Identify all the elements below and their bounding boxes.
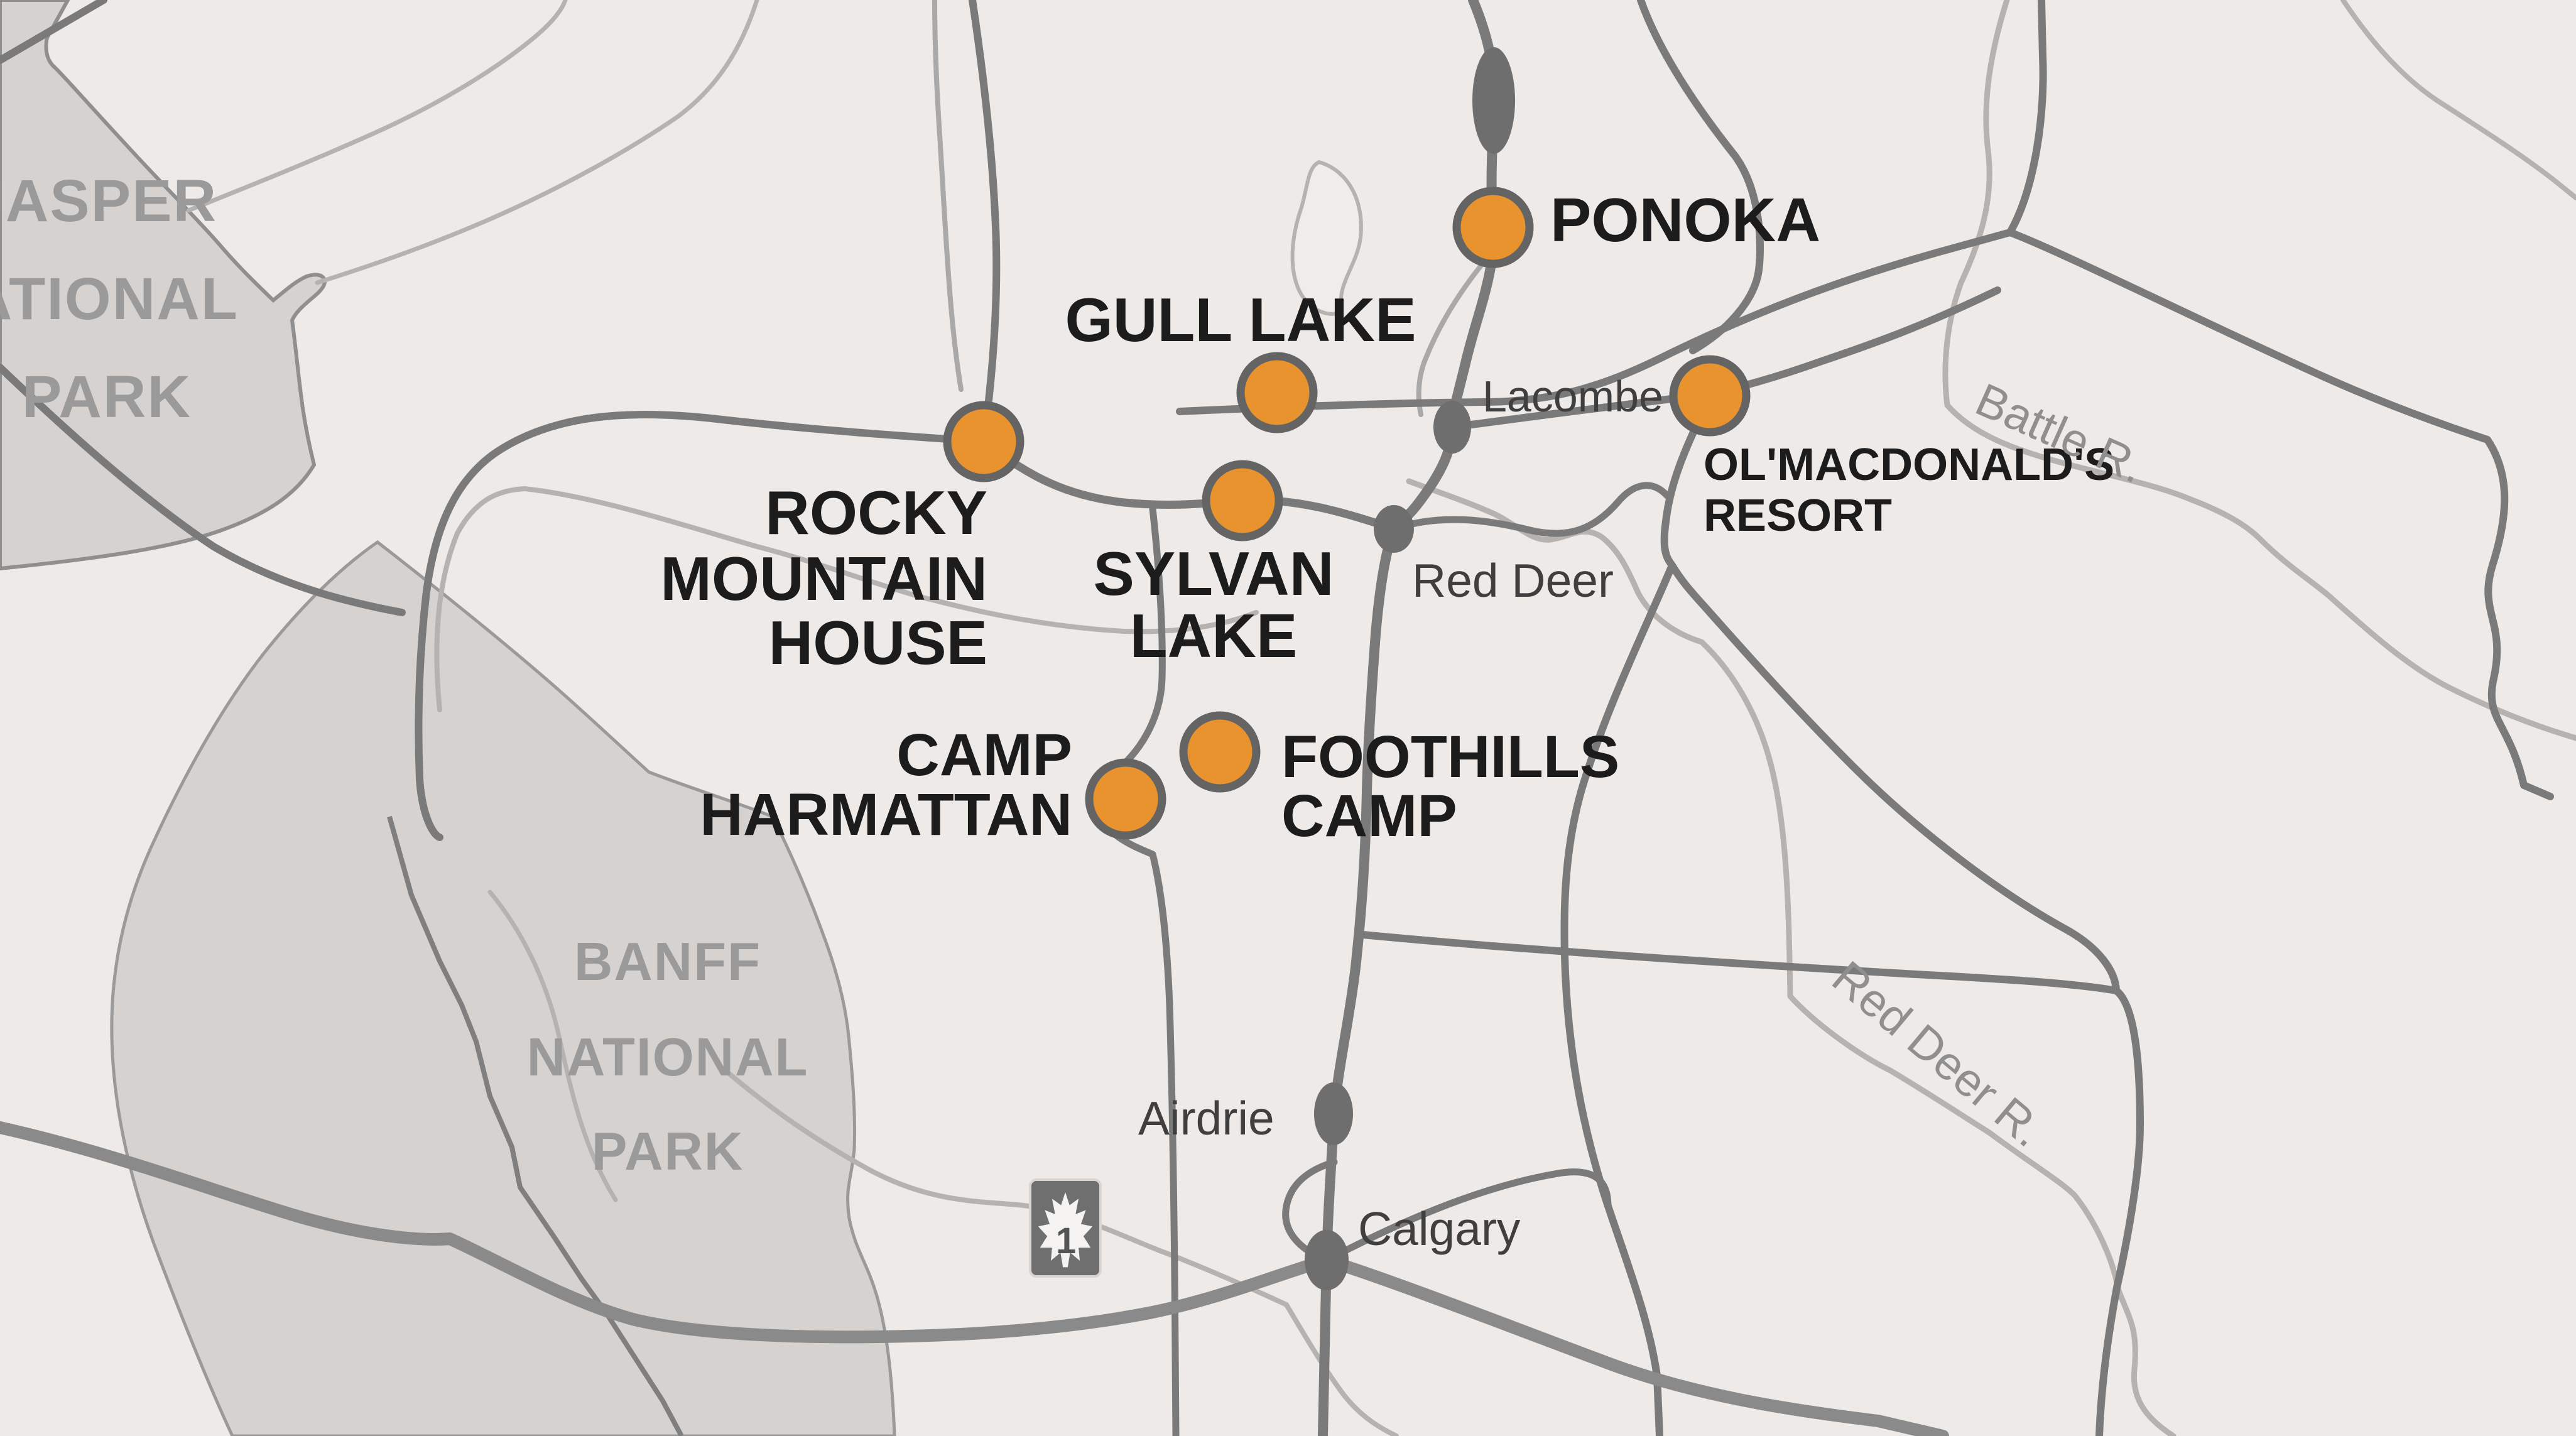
jasper-label-line2: NATIONAL xyxy=(0,266,239,332)
label-harmattan-line1: CAMP xyxy=(896,722,1072,788)
label-lacombe: Lacombe xyxy=(1482,372,1663,421)
shield-number: 1 xyxy=(1056,1221,1076,1261)
marker-foothills-camp[interactable] xyxy=(1183,715,1256,788)
marker-sylvan-lake[interactable] xyxy=(1206,464,1279,537)
label-sylvan-lake-line2: LAKE xyxy=(1130,601,1298,670)
label-airdrie: Airdrie xyxy=(1138,1092,1274,1145)
city-dot-north xyxy=(1472,47,1515,154)
label-sylvan-lake-line1: SYLVAN xyxy=(1094,539,1334,608)
banff-label-line2: NATIONAL xyxy=(527,1028,809,1087)
label-calgary: Calgary xyxy=(1358,1202,1521,1255)
city-dot-calgary xyxy=(1305,1230,1349,1290)
marker-rocky-mountain-house[interactable] xyxy=(947,405,1020,478)
jasper-label-line1: JASPER xyxy=(0,168,217,234)
label-rmh-line2: MOUNTAIN xyxy=(660,544,987,613)
label-gull-lake: GULL LAKE xyxy=(1065,285,1416,354)
banff-label-line1: BANFF xyxy=(574,932,761,992)
label-rmh-line3: HOUSE xyxy=(768,608,987,677)
marker-ponoka[interactable] xyxy=(1457,191,1530,264)
jasper-label-line3: PARK xyxy=(22,364,192,430)
highway1-shield: 1 xyxy=(1030,1180,1101,1276)
label-foothills-line2: CAMP xyxy=(1281,783,1457,849)
label-harmattan-line2: HARMATTAN xyxy=(700,781,1072,848)
label-red-deer: Red Deer xyxy=(1412,554,1614,607)
city-dot-red-deer xyxy=(1374,505,1414,553)
alberta-camps-map: 1 JASPER NATIONAL PARK BANFF NATIONAL PA… xyxy=(0,0,2576,1436)
city-dot-lacombe xyxy=(1433,401,1471,454)
marker-gull-lake[interactable] xyxy=(1241,356,1313,429)
marker-olmacdonalds-resort[interactable] xyxy=(1673,359,1746,432)
label-foothills-line1: FOOTHILLS xyxy=(1281,724,1619,790)
banff-label-line3: PARK xyxy=(592,1122,744,1182)
label-rmh-line1: ROCKY xyxy=(765,478,987,547)
marker-camp-harmattan[interactable] xyxy=(1089,763,1162,835)
city-dot-airdrie xyxy=(1314,1082,1353,1145)
label-ponoka: PONOKA xyxy=(1550,185,1820,254)
label-olmacdonalds-line2: RESORT xyxy=(1704,491,1892,541)
